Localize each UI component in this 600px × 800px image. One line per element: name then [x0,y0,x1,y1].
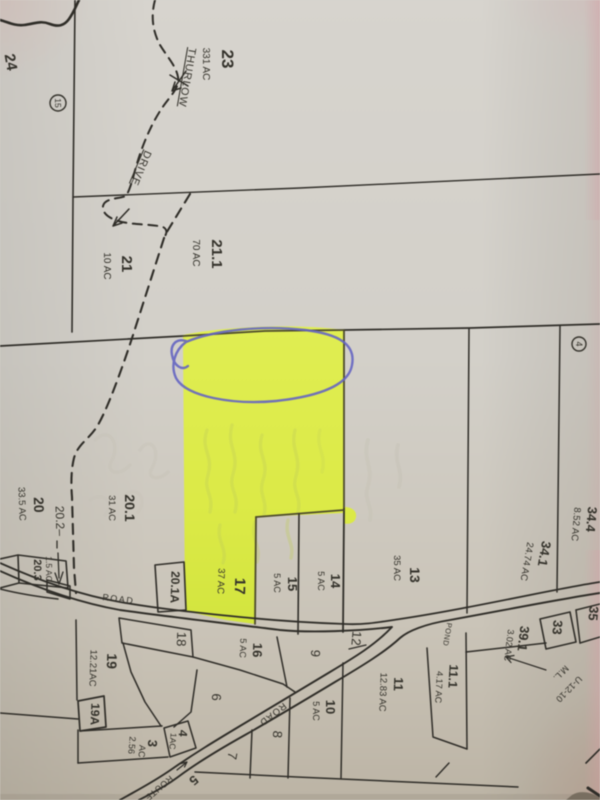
svg-text:5 AC: 5 AC [238,638,249,658]
svg-text:2.56: 2.56 [126,736,137,754]
svg-text:15: 15 [285,577,300,591]
svg-text:20.1A: 20.1A [167,571,182,604]
svg-text:31 AC: 31 AC [106,495,117,521]
svg-text:9: 9 [308,649,324,658]
svg-text:12: 12 [348,631,364,647]
svg-text:5 AC: 5 AC [316,571,326,591]
svg-text:23: 23 [218,50,237,69]
svg-text:1AC: 1AC [167,733,178,750]
svg-text:18: 18 [174,632,189,647]
svg-text:8: 8 [270,730,286,739]
svg-text:AC: AC [136,745,147,759]
svg-text:16: 16 [250,643,265,658]
svg-text:6: 6 [209,693,224,701]
svg-text:19A: 19A [88,703,103,726]
svg-text:19: 19 [104,653,121,669]
svg-text:10 AC: 10 AC [101,252,112,279]
svg-text:331 AC: 331 AC [200,48,211,81]
svg-text:11: 11 [391,677,406,691]
svg-text:11.1: 11.1 [445,664,460,688]
svg-text:17: 17 [231,578,249,595]
svg-text:35: 35 [585,606,600,622]
svg-text:14: 14 [328,574,343,589]
svg-text:20.2–: 20.2– [52,506,67,537]
svg-text:13: 13 [407,567,423,583]
svg-text:4: 4 [574,341,584,346]
svg-text:21.1: 21.1 [208,239,225,268]
svg-text:39.1: 39.1 [514,625,532,652]
svg-text:4.17 AC: 4.17 AC [433,671,445,704]
svg-text:33: 33 [549,620,565,636]
svg-text:70 AC: 70 AC [190,239,201,266]
svg-text:5 AC: 5 AC [311,701,321,721]
svg-text:12.83 AC: 12.83 AC [376,672,388,712]
svg-text:1.5 AC: 1.5 AC [44,556,54,582]
svg-text:20: 20 [31,497,48,513]
svg-text:37 AC: 37 AC [215,568,227,594]
svg-text:10: 10 [323,700,338,714]
svg-text:12.21AC: 12.21AC [86,649,98,686]
svg-text:21: 21 [118,256,135,273]
svg-text:34.4: 34.4 [583,506,600,533]
svg-text:20.3: 20.3 [31,559,43,580]
svg-text:20.1: 20.1 [122,494,138,521]
svg-text:35 AC: 35 AC [391,555,402,581]
svg-text:15: 15 [53,98,63,108]
svg-text:33.5 AC: 33.5 AC [15,487,27,521]
svg-text:5 AC: 5 AC [272,573,282,593]
